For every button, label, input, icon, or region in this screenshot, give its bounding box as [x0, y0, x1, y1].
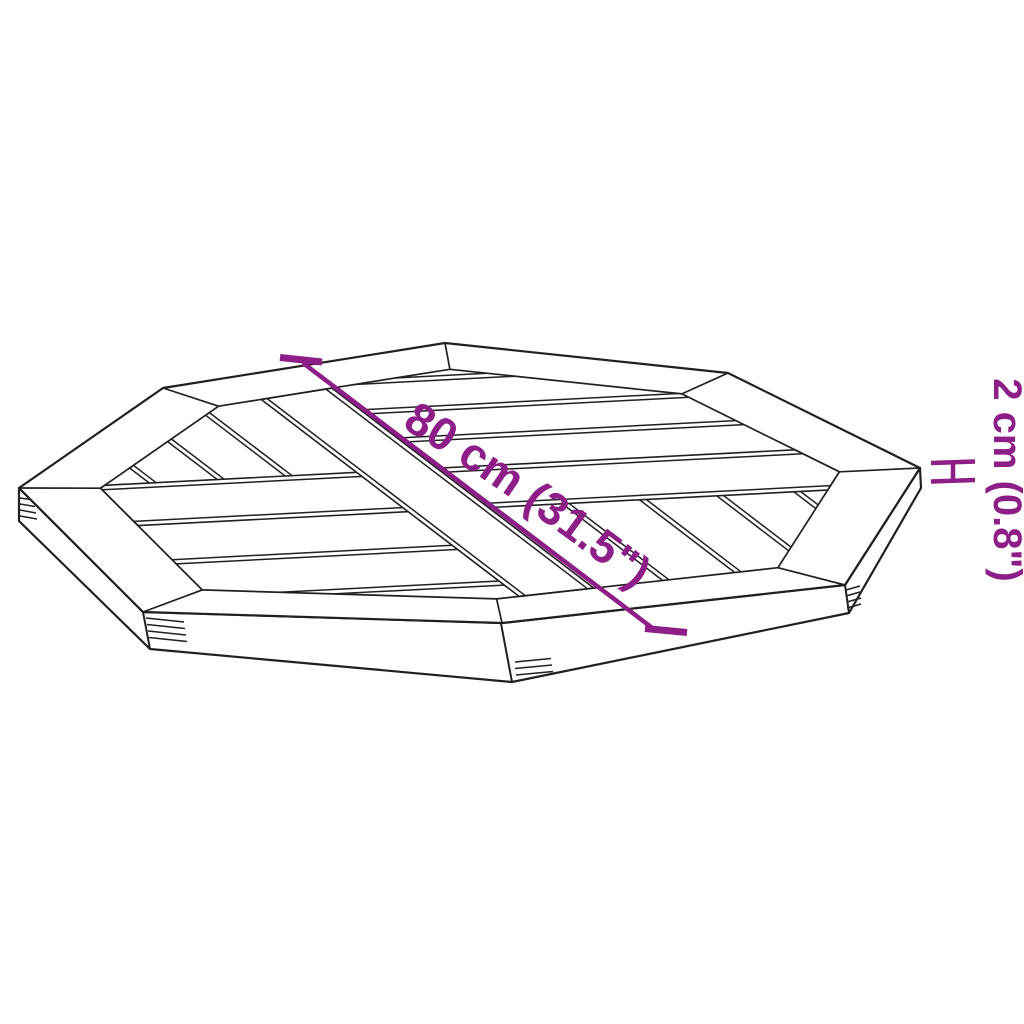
width-dimension-end-tick [645, 629, 687, 633]
table-top-drawing [19, 343, 921, 682]
thickness-extent-marker-icon [931, 462, 975, 482]
thickness-dimension-label: 2 cm (0.8") [985, 378, 1024, 582]
table-top-diagram: 80 cm (31.5") 2 cm (0.8") [0, 0, 1024, 1024]
product-dimension-image: 80 cm (31.5") 2 cm (0.8") [0, 0, 1024, 1024]
width-dimension-start-tick [280, 358, 322, 363]
thickness-dimension: 2 cm (0.8") [931, 378, 1024, 582]
